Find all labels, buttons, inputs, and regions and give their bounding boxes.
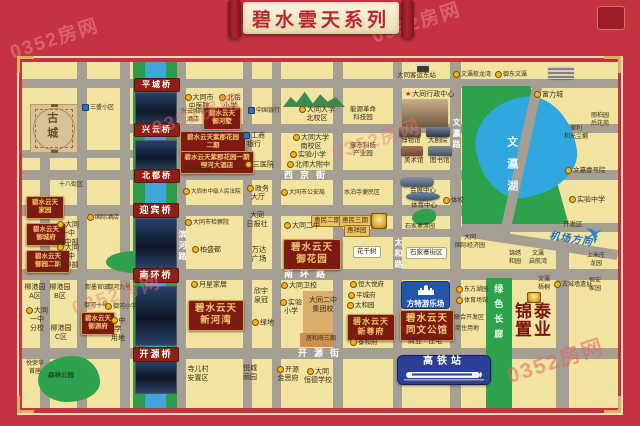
corner-stamp: [597, 6, 625, 30]
street-label: 太和路: [393, 238, 403, 271]
title-banner: 碧水雲天系列: [228, 0, 414, 38]
bridge-label: 平城桥: [134, 78, 180, 92]
scroll-end-icon: [228, 0, 241, 38]
expo-center-art: [400, 177, 434, 187]
theater-art: [426, 127, 450, 137]
street-label: 西京街: [284, 170, 332, 181]
project-xinhewan: 碧水云天 新河湾: [188, 300, 244, 331]
map-label: 十八街区: [59, 182, 83, 190]
star-icon: ★: [405, 91, 411, 98]
map-label: ★大同行政中心: [405, 91, 454, 100]
gold-marker-icon: [287, 161, 294, 168]
map-label: 大剧院: [428, 137, 448, 145]
map-label: 绿地: [252, 319, 274, 328]
map-label: 大同一中 分校: [24, 307, 50, 334]
gold-marker-icon: [350, 339, 357, 346]
map-label: 寺儿村 安置区: [184, 366, 212, 384]
gold-marker-icon: [191, 281, 198, 288]
bridge-photo: [135, 360, 177, 394]
bridge-label: 迎宾桥: [133, 203, 179, 218]
place-label: 花千树: [353, 246, 381, 258]
gold-marker-icon: [456, 286, 463, 293]
map-label: 万达 广场: [248, 245, 270, 264]
map-label: 大同市中级人民法院: [183, 188, 241, 196]
map-label: 森林公园: [48, 372, 74, 380]
gold-marker-icon: [565, 167, 572, 174]
gold-marker-icon: [307, 368, 314, 375]
green-corridor-label: 绿色长廊: [492, 284, 503, 344]
gold-marker-icon: [293, 134, 300, 141]
fantawild-label: 方特游乐场: [402, 300, 449, 308]
gold-marker-icon: [348, 292, 355, 299]
gold-marker-icon: [495, 71, 502, 78]
city-gate-icon: [51, 104, 58, 107]
promo-map-image: 方特游乐场 高铁站 ✈ 0352房网 0352房网 0352房网 0352房网 …: [0, 0, 640, 426]
map-label: 三盛小区: [82, 104, 114, 113]
map-label: 实验小学: [290, 151, 326, 160]
old-town-label: 古城: [44, 112, 58, 142]
street-label: 开源街: [298, 348, 346, 359]
city-gate-icon: [51, 150, 58, 153]
gold-marker-icon: [192, 246, 199, 253]
gold-marker-icon: [347, 302, 354, 309]
scroll-body: 碧水雲天系列: [243, 2, 399, 34]
gold-marker-icon: [290, 151, 297, 158]
corner-ornament: [604, 56, 621, 73]
gold-marker-icon: [569, 196, 576, 203]
gold-marker-icon: [299, 106, 306, 113]
hotel-building-art: [548, 66, 574, 79]
map-canvas: 方特游乐场 高铁站 ✈ 0352房网 0352房网 0352房网 0352房网 …: [0, 0, 640, 426]
bridge-photo: [135, 218, 177, 270]
lake-label: 文瀛湖: [504, 136, 518, 202]
map-label: 文瀛壹号院: [565, 167, 606, 175]
road-segment: [120, 62, 130, 408]
gold-emblem-icon: [371, 213, 387, 229]
zone-label: 惠祥园: [344, 225, 370, 237]
street-label: 南环路: [284, 269, 332, 280]
street-label: 文瀛路: [451, 118, 461, 151]
map-label: 大同 国际经济园: [455, 235, 485, 250]
map-label: 保利 和光尘樾: [560, 126, 592, 141]
gold-marker-icon: [281, 189, 288, 196]
map-label: 文瀛 启航湾: [526, 251, 550, 266]
map-label: 商业 · 住宅: [402, 338, 448, 347]
gold-marker-icon: [350, 281, 357, 288]
bridge-label: 北都桥: [134, 169, 180, 183]
map-label: 大同一中 高中部: [54, 244, 82, 271]
blue-marker-icon: [82, 104, 89, 111]
scroll-end-icon: [401, 0, 414, 38]
frame-right: [618, 0, 640, 426]
gold-marker-icon: [280, 299, 287, 306]
map-label: 悦荣华 首座: [24, 361, 46, 376]
map-label: 锦绣 和园: [505, 251, 525, 266]
map-label: 御东文瀛: [495, 71, 527, 80]
castle-icon: [417, 285, 435, 295]
jintai-brand: 锦泰 置业: [515, 303, 553, 340]
map-label: 中学 用地: [109, 317, 127, 344]
map-label: 体校: [443, 197, 464, 205]
hsr-station-box: 高铁站: [397, 355, 491, 385]
map-label: 欣宇 泉冠: [251, 288, 271, 306]
frame-bottom: [0, 408, 640, 426]
project-xinzunfu: 碧水云天 新尊府: [347, 314, 395, 341]
map-label: 恒安 家园: [584, 278, 606, 293]
map-label: 三医院: [245, 161, 274, 170]
gold-marker-icon: [284, 222, 291, 229]
map-label: 商住用地: [455, 326, 479, 334]
map-label: 国际酒店: [87, 214, 119, 223]
map-label: 文瀛梳龙湾: [453, 71, 491, 80]
art-gallery-art: [401, 146, 423, 156]
map-label: 恒大悦府: [350, 281, 384, 289]
map-label: 能源革命 科技园: [346, 106, 380, 122]
map-label: 大同客运东站: [397, 72, 436, 80]
blue-marker-icon: [248, 107, 255, 114]
map-label: 图书馆: [430, 157, 450, 165]
project-label: 碧水云天 家园: [26, 196, 64, 219]
gold-marker-icon: [183, 188, 190, 195]
gold-marker-icon: [87, 214, 94, 221]
gold-marker-icon: [456, 297, 463, 304]
map-label: 泰和府: [350, 339, 378, 347]
map-label: 北师大附中: [287, 161, 330, 170]
map-label: 美术馆: [404, 157, 424, 165]
gold-marker-icon: [252, 319, 259, 326]
map-label: 大同卫校: [281, 282, 317, 291]
map-label: 实验 小学: [280, 299, 302, 317]
gold-marker-icon: [185, 219, 192, 226]
map-label: 实验中学: [569, 196, 605, 205]
map-label: 体育中心: [411, 202, 437, 210]
gold-marker-icon: [111, 317, 118, 324]
map-label: 大同 日报社: [244, 212, 270, 230]
gold-marker-icon: [245, 161, 252, 168]
map-label: 富力城: [534, 91, 563, 100]
road-segment: [556, 240, 569, 408]
place-label: 石家寨街区: [406, 247, 447, 259]
map-label: 大同大学 北校区: [298, 106, 336, 124]
bridge-photo: [135, 140, 177, 172]
map-label: 石家寨游园: [405, 224, 435, 232]
fantawild-box: 方特游乐场: [401, 281, 450, 309]
map-label: 柳港园 C区: [50, 325, 72, 343]
map-label: 平城府: [348, 292, 376, 300]
map-label: 水泊寺便民区: [344, 190, 380, 198]
gold-marker-icon: [57, 244, 64, 251]
map-label: 悦城 丽园: [240, 365, 260, 383]
corner-ornament: [604, 396, 621, 413]
hsr-station-label: 高铁站: [398, 356, 490, 368]
library-art: [428, 146, 452, 156]
map-label: 体育场馆: [456, 297, 488, 306]
gold-marker-icon: [281, 282, 288, 289]
map-label: 月星家居: [191, 281, 227, 290]
map-label: 华丽蔓园: [187, 167, 211, 175]
project-tongwen: 碧水云天 同文公馆: [400, 310, 454, 341]
gold-marker-icon: [554, 281, 561, 288]
bus-station-icon: [417, 64, 429, 72]
map-label: 上米庄 龙园: [584, 253, 608, 268]
map-label: 大同二中: [284, 222, 320, 231]
map-label: 工商 银行: [243, 132, 265, 150]
map-label: 大同市检察院: [185, 219, 229, 228]
map-label: 政务 大厅: [247, 185, 269, 203]
gold-marker-icon: [443, 197, 450, 204]
map-label: 东方湖园: [456, 286, 488, 295]
map-label: 太和园: [347, 302, 375, 310]
bridge-label: 开源桥: [133, 347, 179, 362]
map-label: 开源 金思府: [276, 366, 300, 384]
gold-marker-icon: [247, 185, 254, 192]
map-label: 大同大学 南校区: [292, 134, 330, 152]
map-label: 柳港园 B区: [49, 284, 71, 302]
map-label: 中国银行: [248, 107, 280, 116]
gold-marker-icon: [534, 91, 541, 98]
map-label: 柏盛都: [192, 246, 221, 255]
page-title: 碧水雲天系列: [252, 5, 390, 32]
map-label: 大同二中 集团校: [306, 297, 340, 315]
map-label: 大同市公安局: [281, 189, 325, 198]
gold-marker-icon: [57, 221, 64, 228]
project-yuhuayuan: 碧水云天 御花园: [283, 239, 341, 270]
gold-marker-icon: [26, 307, 33, 314]
corner-ornament: [17, 396, 34, 413]
map-label: 大同 恒德学校: [304, 368, 332, 386]
street-label: 滨河路: [177, 230, 187, 263]
blue-marker-icon: [243, 132, 250, 139]
map-label: 文瀛 梧桐: [534, 277, 554, 292]
gold-marker-icon: [277, 366, 284, 373]
map-label: 联合开发区: [454, 315, 484, 323]
map-label: 居和府三期: [306, 336, 336, 344]
map-label: 柳港园 A区: [24, 284, 46, 302]
gold-marker-icon: [453, 71, 460, 78]
map-label: 会展中心: [410, 187, 436, 195]
train-icon: [404, 371, 484, 381]
